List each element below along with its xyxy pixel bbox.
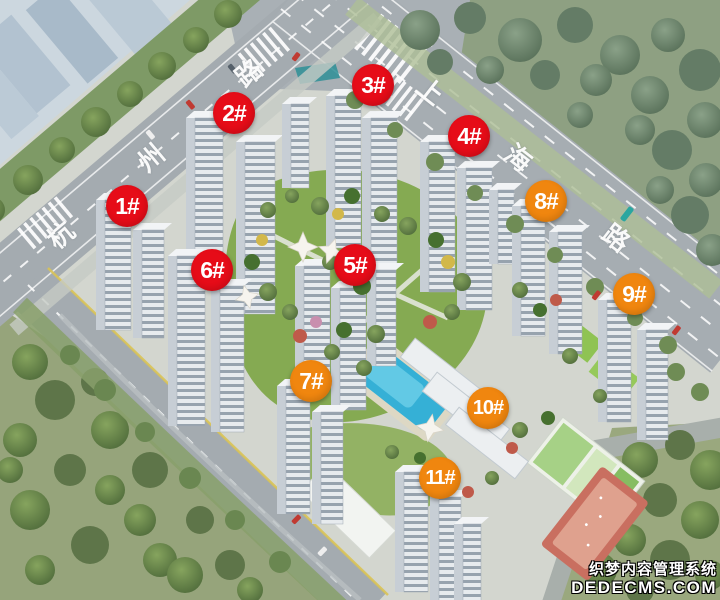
watermark: 织梦内容管理系统 DEDECMS.COM (571, 561, 717, 598)
watermark-line-cn: 织梦内容管理系统 (571, 561, 717, 578)
watermark-line-en: DEDECMS.COM (571, 578, 717, 598)
aerial-site-plan: 杭州路上海路 1#2#3#4#5#6#7#8#9#10#11# 织梦内容管理系统… (0, 0, 720, 600)
site-rendering-background (0, 0, 720, 600)
